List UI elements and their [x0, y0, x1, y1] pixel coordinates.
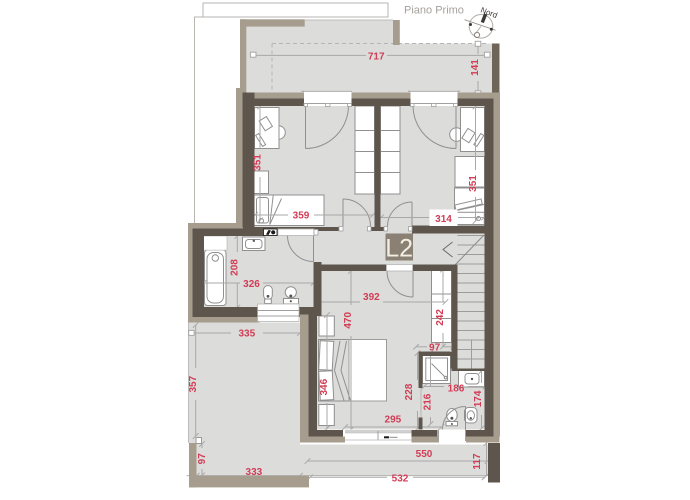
svg-text:351: 351 — [468, 175, 479, 192]
svg-text:351: 351 — [252, 154, 263, 171]
svg-text:392: 392 — [363, 292, 380, 303]
svg-text:242: 242 — [435, 309, 446, 326]
svg-text:295: 295 — [385, 415, 402, 426]
svg-text:314: 314 — [435, 214, 452, 225]
svg-text:228: 228 — [404, 383, 415, 400]
svg-text:208: 208 — [230, 259, 241, 276]
svg-text:359: 359 — [293, 211, 310, 222]
svg-text:97: 97 — [197, 453, 208, 465]
svg-text:117: 117 — [472, 453, 483, 470]
svg-text:174: 174 — [473, 390, 484, 407]
svg-text:97: 97 — [429, 342, 441, 353]
svg-text:346: 346 — [319, 378, 330, 395]
svg-text:L2: L2 — [385, 235, 413, 263]
svg-text:326: 326 — [243, 279, 260, 290]
svg-text:186: 186 — [448, 384, 465, 395]
svg-text:357: 357 — [188, 375, 199, 392]
svg-text:335: 335 — [238, 329, 255, 340]
svg-text:333: 333 — [246, 467, 263, 478]
svg-text:216: 216 — [423, 393, 434, 410]
svg-text:532: 532 — [392, 473, 409, 484]
svg-text:550: 550 — [416, 449, 433, 460]
svg-text:470: 470 — [343, 312, 354, 329]
svg-text:Piano Primo: Piano Primo — [404, 5, 464, 17]
svg-text:717: 717 — [368, 51, 385, 62]
svg-text:141: 141 — [470, 59, 481, 76]
